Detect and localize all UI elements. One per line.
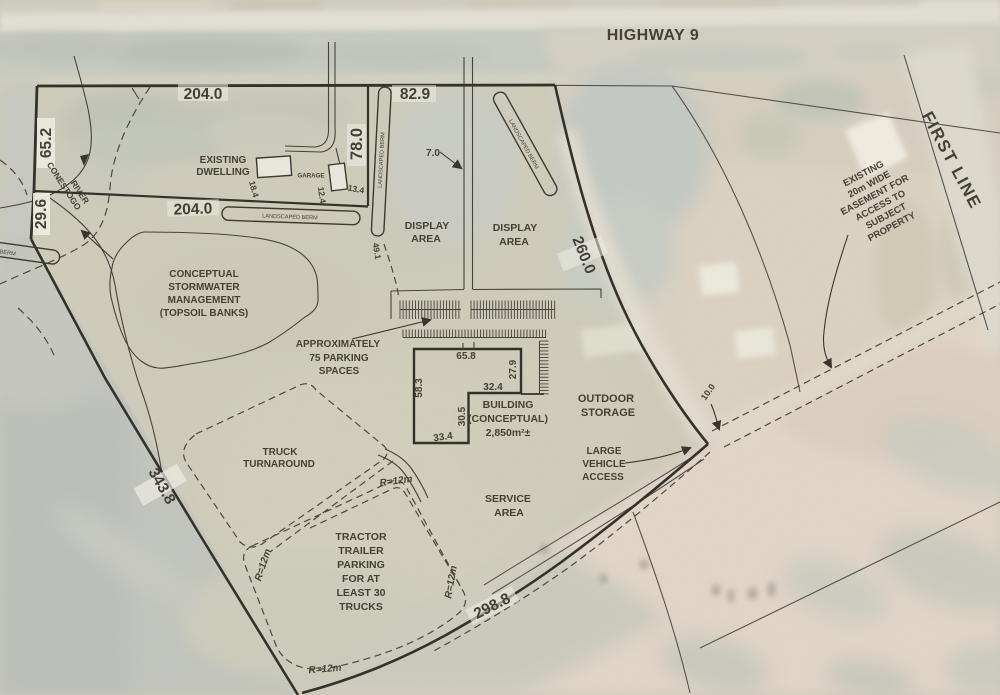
svg-text:204.0: 204.0 bbox=[184, 86, 223, 103]
svg-text:(TOPSOIL BANKS): (TOPSOIL BANKS) bbox=[160, 308, 249, 319]
svg-text:AREA: AREA bbox=[494, 507, 524, 519]
svg-text:75 PARKING: 75 PARKING bbox=[309, 353, 368, 364]
svg-text:FOR AT: FOR AT bbox=[342, 573, 380, 585]
svg-text:AREA: AREA bbox=[411, 233, 441, 245]
svg-text:OUTDOOR: OUTDOOR bbox=[578, 393, 634, 405]
svg-text:STORMWATER: STORMWATER bbox=[168, 282, 240, 293]
svg-text:2,850m²±: 2,850m²± bbox=[486, 427, 531, 439]
svg-text:LARGE: LARGE bbox=[587, 446, 622, 457]
svg-text:DISPLAY: DISPLAY bbox=[405, 220, 450, 232]
svg-text:LEAST 30: LEAST 30 bbox=[336, 587, 385, 599]
svg-text:MANAGEMENT: MANAGEMENT bbox=[168, 295, 241, 306]
svg-text:65.8: 65.8 bbox=[456, 351, 476, 362]
svg-text:BUILDING: BUILDING bbox=[483, 399, 534, 411]
svg-text:ACCESS: ACCESS bbox=[582, 472, 624, 483]
svg-text:TRUCKS: TRUCKS bbox=[339, 601, 383, 613]
svg-text:204.0: 204.0 bbox=[173, 200, 212, 218]
svg-text:32.4: 32.4 bbox=[483, 382, 503, 393]
svg-text:HIGHWAY 9: HIGHWAY 9 bbox=[607, 27, 700, 44]
svg-text:STORAGE: STORAGE bbox=[581, 407, 635, 419]
svg-text:TRAILER: TRAILER bbox=[338, 545, 384, 557]
svg-text:27.9: 27.9 bbox=[508, 359, 519, 379]
svg-text:29.6: 29.6 bbox=[33, 199, 50, 230]
svg-text:CONCEPTUAL: CONCEPTUAL bbox=[169, 269, 238, 280]
svg-text:82.9: 82.9 bbox=[400, 86, 431, 103]
svg-text:APPROXIMATELY: APPROXIMATELY bbox=[296, 339, 381, 350]
svg-text:78.0: 78.0 bbox=[348, 128, 366, 160]
svg-text:SERVICE: SERVICE bbox=[485, 493, 531, 505]
svg-text:TURNAROUND: TURNAROUND bbox=[243, 459, 315, 470]
svg-text:DWELLING: DWELLING bbox=[196, 167, 250, 178]
svg-text:PARKING: PARKING bbox=[337, 559, 385, 571]
svg-text:VEHICLE: VEHICLE bbox=[582, 459, 626, 470]
svg-text:AREA: AREA bbox=[499, 236, 529, 248]
svg-text:TRACTOR: TRACTOR bbox=[335, 531, 387, 543]
svg-text:30.5: 30.5 bbox=[457, 406, 468, 426]
svg-text:DISPLAY: DISPLAY bbox=[493, 222, 538, 234]
svg-text:SPACES: SPACES bbox=[319, 366, 360, 377]
svg-text:58.3: 58.3 bbox=[414, 378, 425, 398]
svg-text:EXISTING: EXISTING bbox=[200, 155, 247, 166]
svg-text:TRUCK: TRUCK bbox=[263, 447, 299, 458]
svg-text:7.0: 7.0 bbox=[426, 148, 440, 159]
svg-text:GARAGE: GARAGE bbox=[297, 173, 324, 180]
svg-text:65.2: 65.2 bbox=[38, 128, 55, 158]
svg-text:(CONCEPTUAL): (CONCEPTUAL) bbox=[468, 413, 548, 425]
